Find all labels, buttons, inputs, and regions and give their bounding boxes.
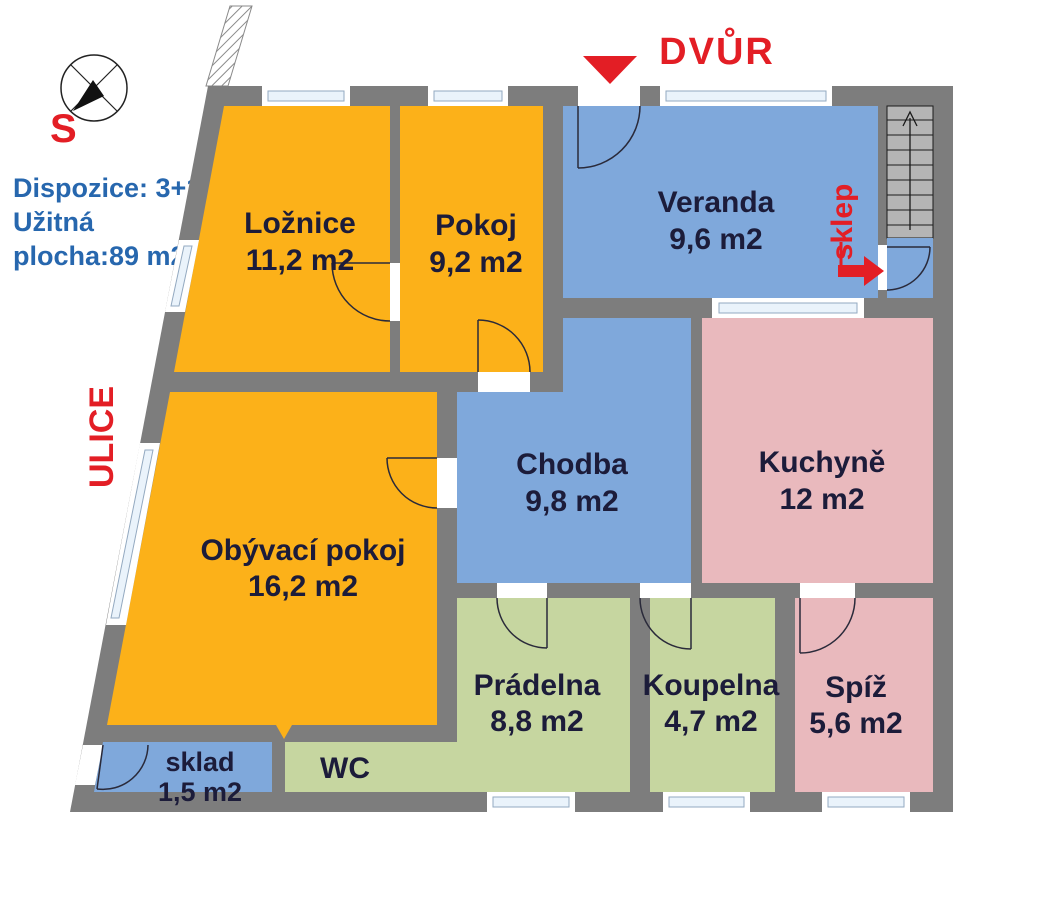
window-loznice (262, 86, 350, 106)
street-label: ULICE (83, 386, 121, 488)
area-obyvaci: 16,2 m2 (248, 570, 358, 603)
label-pradelna: Prádelna (474, 669, 601, 702)
floor-plan: S Dispozice: 3+1 Užitná plocha:89 m2 DVŮ… (0, 0, 1039, 899)
courtyard-label: DVŮR (659, 26, 775, 73)
label-pokoj: Pokoj (435, 209, 517, 242)
window-veranda (660, 86, 832, 106)
entrance-arrow-icon (583, 56, 637, 84)
label-loznice: Ložnice (244, 207, 356, 240)
door-opening-pokoj (478, 372, 530, 392)
label-kuchyne: Kuchyně (759, 446, 886, 479)
window-koupelna (663, 792, 750, 812)
area-pokoj: 9,2 m2 (429, 246, 522, 279)
label-wc: WC (320, 752, 370, 785)
area-pradelna: 8,8 m2 (490, 705, 583, 738)
info-line-area: plocha:89 m2 (13, 241, 186, 271)
door-opening-koupelna (640, 583, 691, 598)
door-opening-vestibule (878, 245, 887, 290)
area-kuchyne: 12 m2 (779, 483, 864, 516)
label-obyvaci: Obývací pokoj (200, 534, 405, 567)
door-opening-obyvaci (437, 458, 457, 508)
door-opening-spiz (800, 583, 855, 598)
compass-south-label: S (50, 107, 77, 151)
area-spiz: 5,6 m2 (809, 707, 902, 740)
area-veranda: 9,6 m2 (669, 223, 762, 256)
area-loznice: 11,2 m2 (246, 244, 354, 277)
window-kuchyne (712, 298, 864, 318)
area-koupelna: 4,7 m2 (664, 705, 757, 738)
window-pradelna (487, 792, 575, 812)
stairs-icon (887, 106, 933, 238)
door-opening-loznice (390, 263, 400, 321)
info-line-usable: Užitná (13, 207, 95, 237)
info-panel: Dispozice: 3+1 Užitná plocha:89 m2 (13, 173, 201, 271)
label-veranda: Veranda (658, 186, 775, 219)
label-chodba: Chodba (516, 448, 628, 481)
label-spiz: Spíž (825, 671, 887, 704)
label-sklad: sklad (165, 747, 234, 777)
neighbor-wall-hatch (206, 6, 252, 86)
label-koupelna: Koupelna (643, 669, 780, 702)
floor-plan-page: S Dispozice: 3+1 Užitná plocha:89 m2 DVŮ… (0, 0, 1039, 899)
door-opening-dvur (578, 86, 640, 106)
window-spiz (822, 792, 910, 812)
window-pokoj (428, 86, 508, 106)
area-sklad: 1,5 m2 (158, 777, 242, 807)
info-line-disposition: Dispozice: 3+1 (13, 173, 201, 203)
area-chodba: 9,8 m2 (525, 485, 618, 518)
door-opening-pradelna (497, 583, 547, 598)
